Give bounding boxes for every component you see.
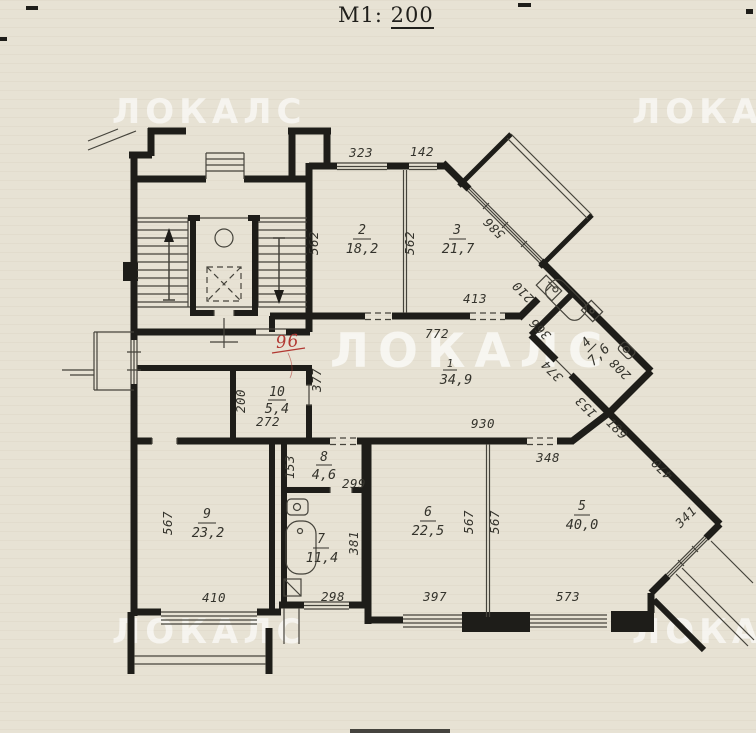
room-label-4: 4 7,6	[573, 329, 614, 370]
dim-label: 397	[422, 589, 447, 604]
room-number: 8	[320, 450, 328, 465]
dim-label: 298	[321, 589, 345, 604]
room-label-10: 10 5,4	[265, 385, 289, 417]
floor-plan-canvas: 323 142 562 562 586 413 210 772 366 374 …	[0, 0, 756, 733]
dim-label: 930	[471, 416, 495, 431]
dim-label: 377	[309, 368, 324, 393]
room-number: 7	[317, 532, 325, 547]
room-number: 6	[424, 505, 432, 520]
room-label-6: 6 22,5	[412, 505, 445, 539]
room-label-9: 9 23,2	[192, 507, 225, 541]
room-number: 2	[358, 223, 366, 238]
dim-label: 299	[342, 476, 366, 491]
room-number: 5	[578, 499, 586, 514]
toilet-icon	[287, 499, 308, 515]
dim-label: 567	[487, 510, 502, 534]
dim-label: 142	[410, 144, 434, 159]
dim-label: 189	[603, 415, 631, 443]
dim-label: 341	[671, 503, 699, 531]
room-number: 9	[203, 507, 211, 522]
room-label-5: 5 40,0	[566, 499, 599, 533]
dim-label: 586	[480, 214, 508, 242]
room-area: 21,7	[442, 241, 475, 257]
room-area: 22,5	[412, 523, 445, 539]
room-area: 34,9	[439, 372, 473, 388]
room-label-1: 1 34,9	[439, 358, 473, 388]
room-label-8: 8 4,6	[312, 450, 336, 483]
dim-label: 562	[402, 231, 417, 255]
room-area: 11,4	[306, 550, 339, 566]
dim-label: 567	[461, 510, 476, 534]
dim-label: 573	[556, 589, 580, 604]
room-label-3: 3 21,7	[442, 223, 475, 257]
windows	[127, 163, 708, 627]
dim-label: 200	[233, 389, 248, 413]
room-number: 3	[452, 223, 461, 238]
dim-label: 772	[425, 326, 449, 341]
dim-label: 410	[202, 590, 226, 605]
dim-label: 374	[538, 357, 566, 385]
dim-label: 208	[606, 355, 634, 383]
dim-label: 153	[282, 455, 297, 479]
room-area: 18,2	[346, 241, 379, 257]
dim-label: 413	[463, 291, 487, 306]
dim-label: 348	[535, 450, 560, 465]
room-area: 23,2	[192, 525, 225, 541]
room-number: 1	[447, 358, 453, 370]
room-area: 5,4	[265, 401, 289, 417]
exterior-walls	[123, 128, 720, 632]
dim-label: 567	[160, 511, 175, 535]
room-area: 4,6	[312, 467, 336, 483]
room-label-7: 7 11,4	[306, 532, 339, 566]
room-number: 10	[269, 385, 285, 400]
dim-label: 381	[346, 531, 361, 556]
dim-label: 562	[306, 231, 321, 255]
room-label-2: 2 18,2	[346, 223, 379, 257]
bathtub-icon	[286, 521, 316, 574]
room-area: 40,0	[566, 517, 599, 533]
dim-label: 323	[348, 145, 373, 160]
